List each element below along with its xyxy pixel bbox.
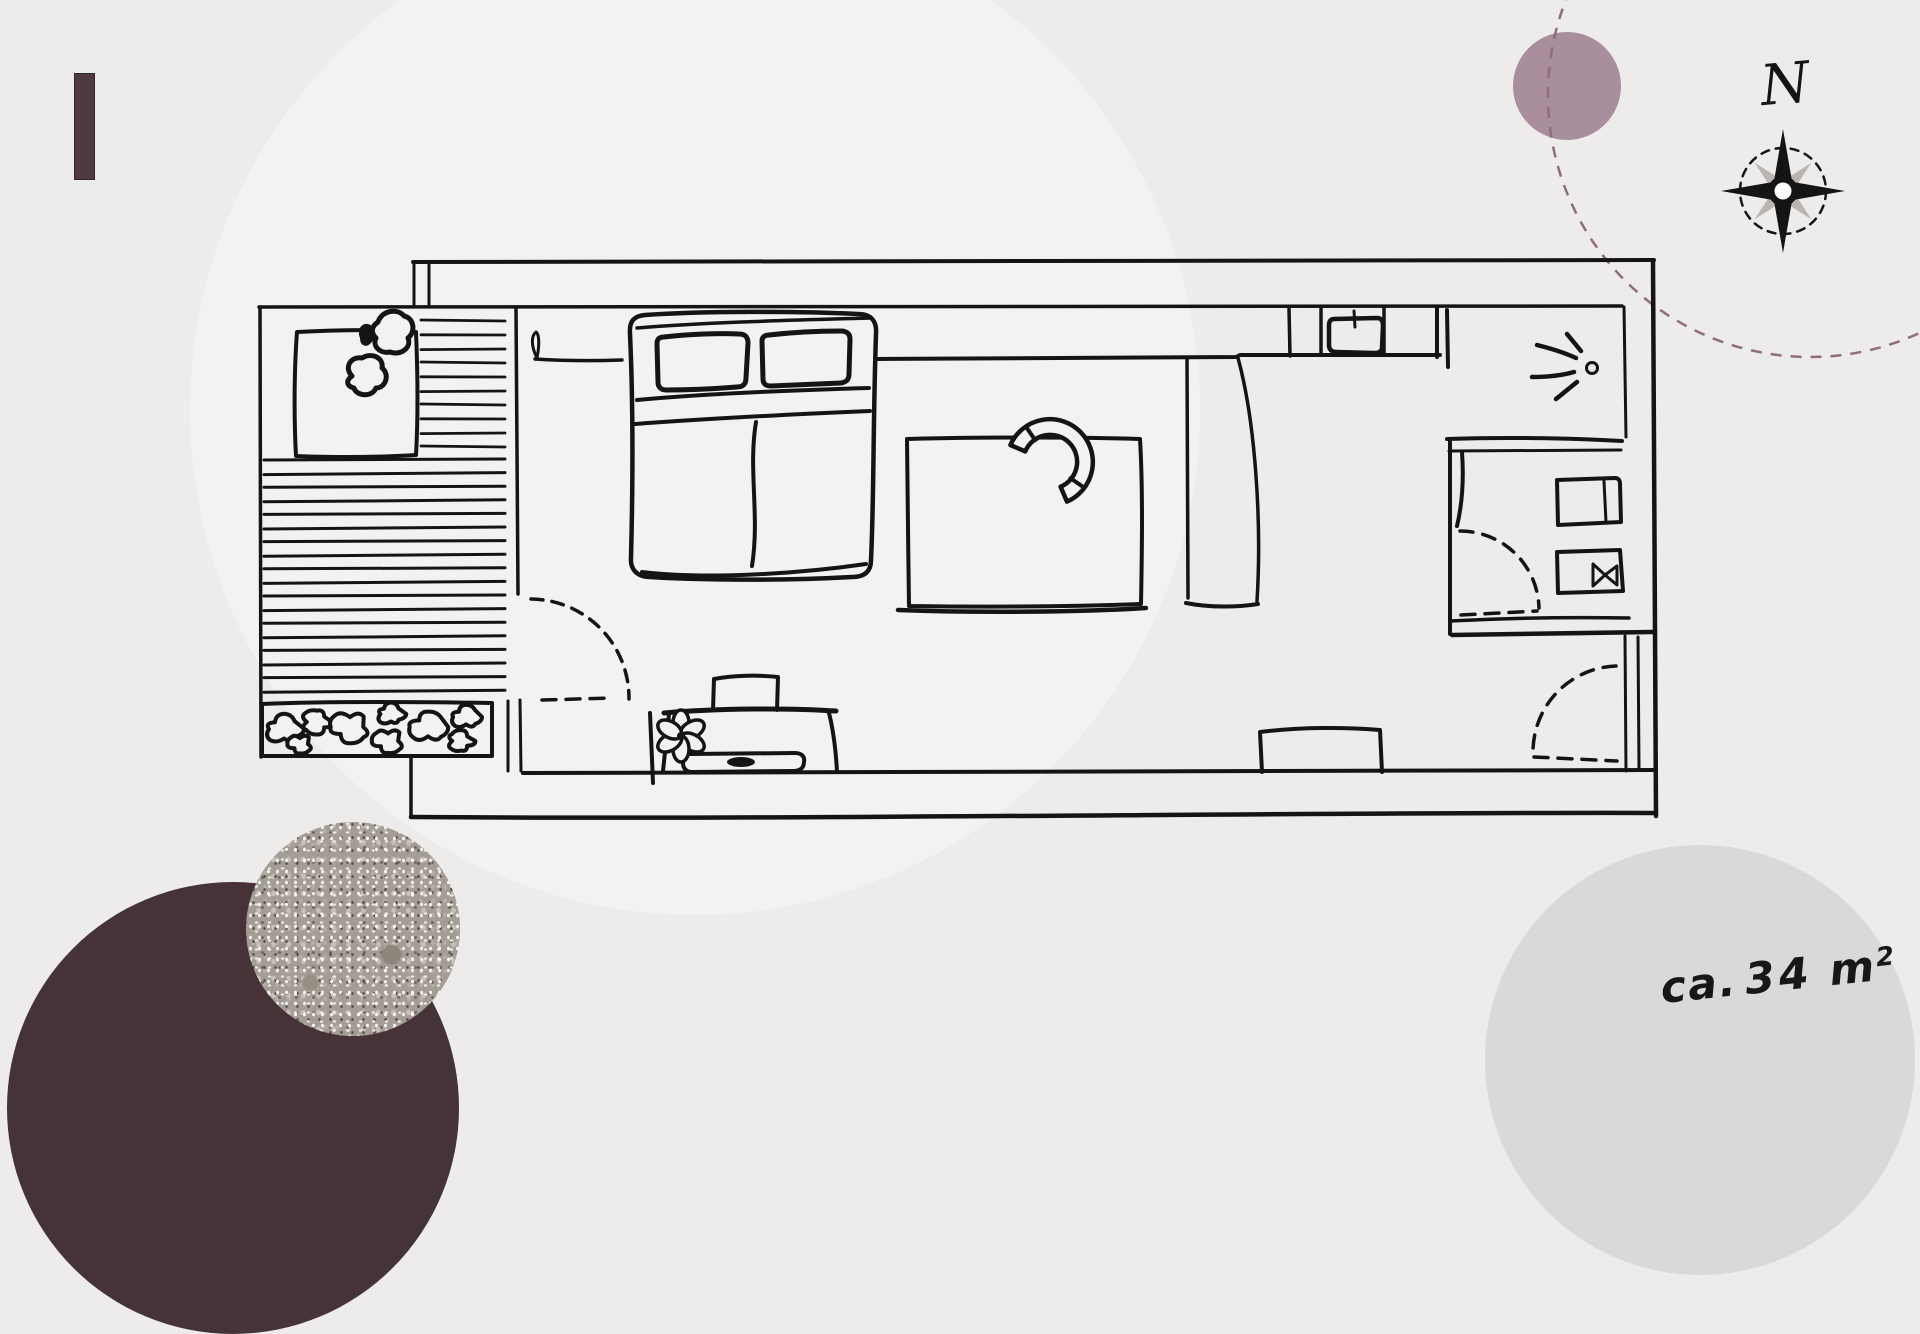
armchair <box>1008 401 1110 503</box>
compass-rose-icon <box>1721 129 1845 253</box>
bathroom <box>1447 438 1655 635</box>
bed <box>630 312 876 580</box>
floor-plan-canvas <box>0 0 1920 1076</box>
pillow <box>762 331 850 386</box>
terrace <box>260 307 629 771</box>
area-prefix: ca. <box>1658 956 1740 1014</box>
dashed-orbit-circle <box>1548 0 1920 357</box>
desk-chair <box>713 676 778 710</box>
terrace-door <box>531 599 629 700</box>
bathroom-door-leaf <box>1457 452 1463 526</box>
kitchen-counter <box>1289 308 1384 356</box>
area-exponent: 2 <box>1875 941 1898 973</box>
desk-area <box>650 676 837 783</box>
floor-plan <box>259 260 1656 818</box>
washing-machine <box>1557 478 1621 525</box>
toilet <box>1557 550 1623 593</box>
light-rays-icon <box>1532 334 1598 399</box>
area-value: 34 <box>1742 948 1815 1005</box>
area-unit: m <box>1827 942 1879 997</box>
entrance-door <box>1533 666 1617 761</box>
gravel-rocks <box>267 703 482 754</box>
drawer-handle <box>727 757 755 767</box>
bathroom-door-arc <box>1460 531 1539 608</box>
sink-tap <box>1354 311 1355 327</box>
bench <box>1260 728 1382 772</box>
north-label: N <box>1742 49 1827 121</box>
pillow <box>657 334 748 390</box>
rug <box>898 438 1146 612</box>
wardrobe <box>1186 358 1259 607</box>
